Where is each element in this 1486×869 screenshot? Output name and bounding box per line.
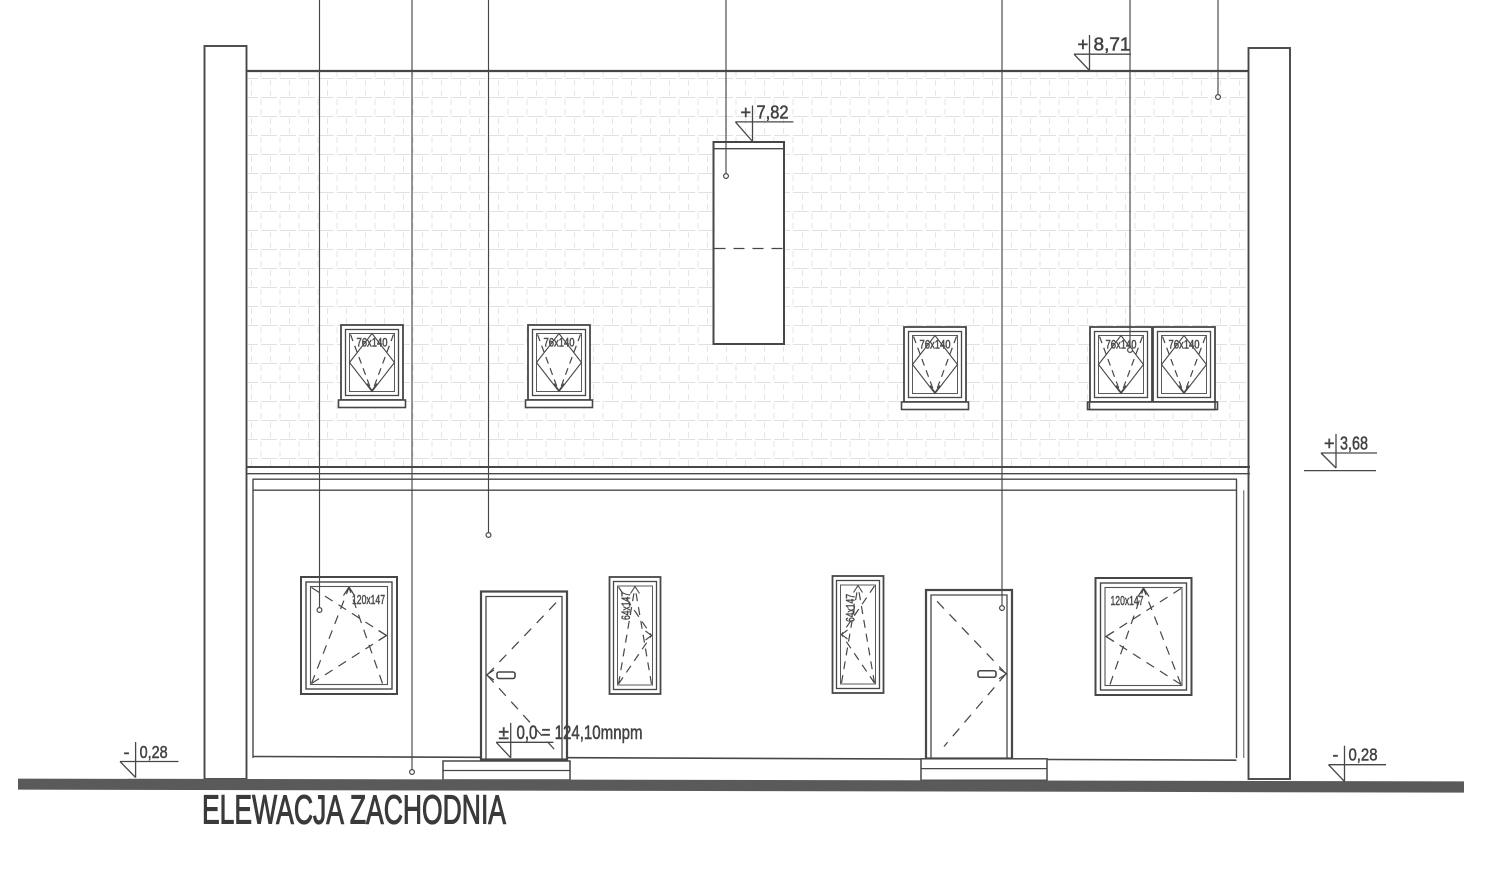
svg-text:0,28: 0,28: [1349, 745, 1378, 765]
svg-text:120x147: 120x147: [1111, 594, 1144, 608]
svg-text:+: +: [1078, 34, 1089, 55]
svg-text:±: ±: [499, 723, 509, 744]
svg-text:76x140: 76x140: [920, 338, 951, 352]
svg-text:+: +: [741, 103, 752, 123]
svg-text:7,82: 7,82: [757, 103, 789, 123]
svg-text:3,68: 3,68: [1340, 434, 1368, 454]
svg-text:0,28: 0,28: [140, 742, 168, 762]
svg-text:0,0 = 124,10mnpm: 0,0 = 124,10mnpm: [517, 723, 643, 744]
svg-text:76x140: 76x140: [544, 336, 575, 350]
svg-text:+: +: [1324, 434, 1335, 454]
svg-text:120x147: 120x147: [352, 593, 385, 607]
svg-text:-: -: [124, 742, 130, 762]
svg-text:64x147: 64x147: [619, 592, 633, 620]
svg-text:-: -: [1333, 745, 1339, 765]
svg-text:64x147: 64x147: [844, 594, 858, 622]
svg-text:8,71: 8,71: [1094, 34, 1131, 55]
svg-text:76x140: 76x140: [1169, 338, 1200, 352]
svg-text:ELEWACJA ZACHODNIA: ELEWACJA ZACHODNIA: [202, 787, 506, 833]
svg-text:76x140: 76x140: [357, 336, 388, 350]
